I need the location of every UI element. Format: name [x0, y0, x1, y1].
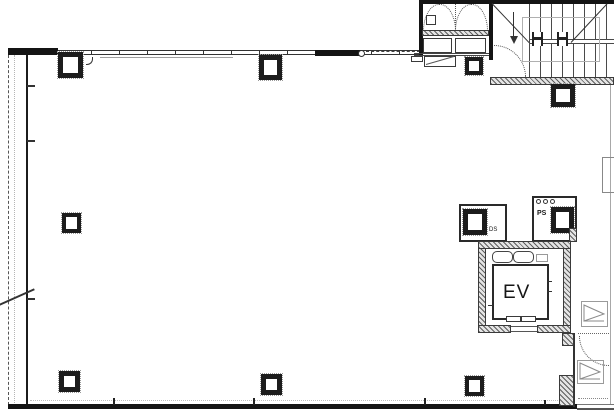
left-wall — [26, 52, 28, 407]
edge-opening-bracket — [602, 157, 614, 193]
facade-break-mark-icon — [0, 288, 35, 305]
ev-wall-left — [478, 248, 486, 333]
top-wall-dashed-segment — [366, 51, 420, 52]
top-wall-solid-mid — [315, 50, 362, 56]
ev-guide-mark — [547, 291, 552, 292]
right-edge-wall-line — [610, 84, 611, 405]
left-wall-tick — [27, 140, 35, 142]
entrance-sill-wall — [422, 30, 489, 36]
bottom-wall-dotted-offset — [30, 400, 570, 401]
handrail-post-bar — [559, 37, 566, 40]
ev-wall-top — [478, 241, 571, 249]
wall-stub — [562, 333, 574, 346]
threshold-rect — [411, 56, 423, 62]
bottom-wall-tick — [113, 398, 115, 405]
bottom-wall — [8, 404, 577, 409]
ev-counterweight — [492, 251, 513, 263]
entrance-mat-right — [455, 38, 486, 53]
shaft-symbol — [577, 360, 604, 384]
entrance-mat-left — [423, 38, 452, 53]
ps-meter-circle — [536, 199, 541, 204]
ev-door-sill — [511, 326, 537, 332]
structural-column — [261, 374, 282, 395]
structural-column — [465, 376, 484, 396]
ev-wall-bottom-left — [478, 325, 511, 333]
ev-car-door-panel — [521, 316, 536, 322]
ds-label: DS — [489, 227, 497, 233]
handrail-post — [532, 32, 543, 46]
ps-meter-circle — [550, 199, 555, 204]
handrail-post-bar — [534, 37, 541, 40]
ev-car-door-panel — [506, 316, 521, 322]
ev-label: EV — [503, 283, 530, 302]
structural-column — [551, 84, 575, 107]
stair-left-wall — [489, 0, 493, 60]
ps-label: PS — [537, 210, 546, 217]
vestibule-wall-box — [426, 15, 436, 25]
top-wall-solid-left — [8, 48, 58, 55]
bottom-wall-tick — [253, 398, 255, 405]
structural-column — [58, 52, 83, 78]
left-facade-outer-line — [8, 50, 9, 405]
bottom-wall-tick — [424, 398, 426, 405]
structural-column — [59, 371, 80, 392]
structural-column — [259, 55, 282, 80]
structural-column — [62, 213, 81, 233]
structural-column — [463, 209, 487, 235]
corridor-dotted-line — [578, 398, 608, 399]
ev-wall-bottom-right — [537, 325, 571, 333]
bottom-wall-tick — [544, 400, 546, 405]
ev-wall-right — [563, 248, 571, 333]
corridor-divider-dotted — [578, 333, 609, 334]
corridor-bottom-wall — [577, 404, 614, 410]
door-pivot-circle — [358, 50, 365, 57]
wall-stub — [559, 375, 574, 406]
handrail-post — [557, 32, 568, 46]
ev-counterweight — [513, 251, 534, 263]
stair-down-arrow-icon — [510, 36, 518, 44]
ev-guide-mark — [488, 305, 493, 306]
dimension-line — [100, 57, 233, 58]
floor-plan-canvas: DS PS EV — [0, 0, 614, 413]
left-wall-tick — [27, 298, 35, 300]
entrance-door-center-line — [455, 4, 456, 31]
ev-guide-mark — [547, 281, 552, 282]
left-facade-inner-dotted — [14, 55, 15, 403]
door-closer-hook-icon — [86, 57, 93, 65]
ev-rail-bracket — [536, 254, 548, 262]
shaft-symbol — [581, 301, 608, 327]
wall-stub — [569, 228, 577, 242]
entrance-door-swing-right — [455, 4, 488, 31]
structural-column — [465, 57, 483, 75]
left-wall-tick — [27, 85, 35, 87]
ps-meter-circle — [543, 199, 548, 204]
